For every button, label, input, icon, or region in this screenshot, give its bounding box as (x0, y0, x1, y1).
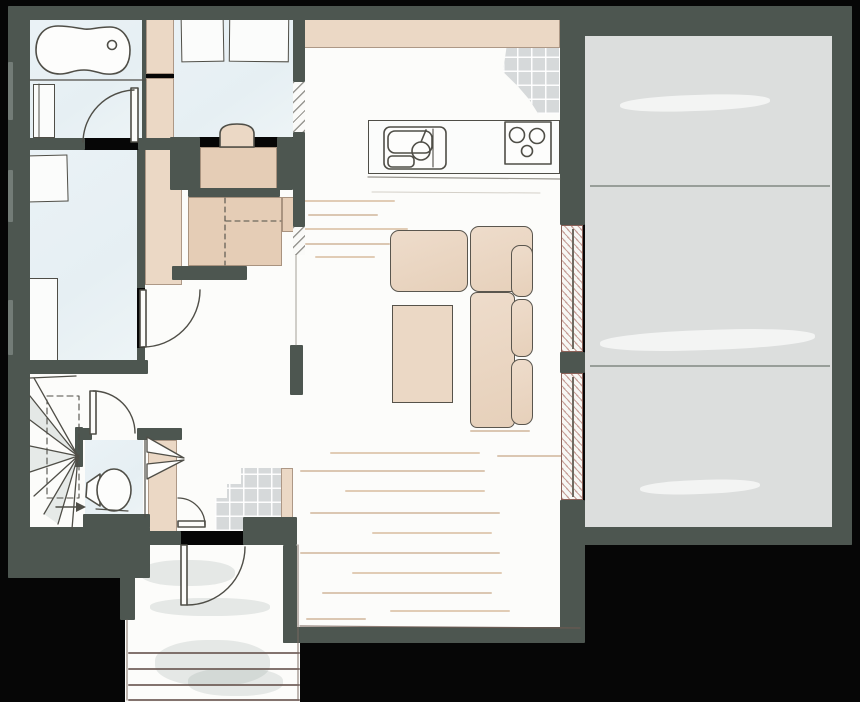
bathroom-door-arc (83, 90, 134, 142)
bathtub (36, 26, 130, 74)
toilet (86, 469, 131, 511)
bedroom-door-arc (143, 290, 200, 347)
wc-door-arc (93, 391, 135, 433)
entry-door-arc (187, 547, 245, 605)
fixture-overlay (0, 0, 860, 702)
wc-door-leaf (90, 391, 96, 434)
stove (505, 122, 551, 164)
living-south-sketch (300, 626, 580, 628)
coat-rack-icon (147, 437, 184, 479)
floor-plan-canvas (0, 0, 860, 702)
entry-closet-door-leaf (178, 521, 205, 527)
winder-stairs (30, 376, 78, 529)
bedroom-door-leaf (140, 290, 146, 347)
entry-door-leaf (181, 545, 187, 605)
kitchen-sink (384, 127, 446, 169)
toilet-bowl (97, 469, 131, 511)
desk-chair (220, 124, 254, 147)
bathroom-door-leaf (131, 88, 138, 142)
counter-shadow-line (372, 192, 540, 193)
counter-edge-line (368, 177, 560, 179)
